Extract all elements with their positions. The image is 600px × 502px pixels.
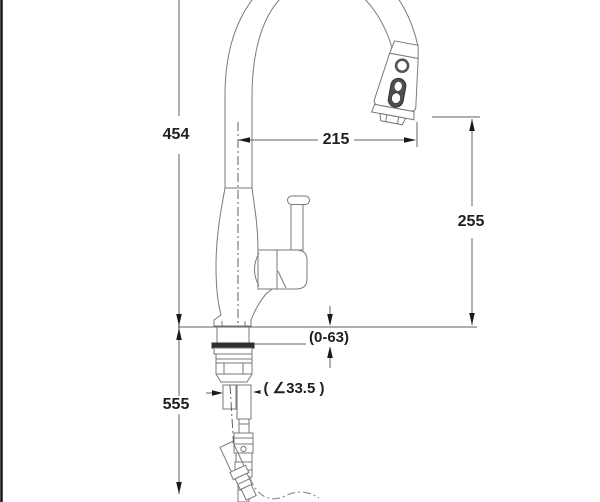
dimension-label-below-deck-length: 555 [160, 396, 193, 414]
faucet-handle [255, 196, 310, 289]
spray-mode-button [395, 59, 409, 73]
braided-hose-left [223, 385, 236, 409]
braided-hose-right [237, 385, 251, 419]
dimension-454-555-line [176, 0, 182, 494]
faucet-technical-drawing: 454 215 255 (0-63) ( ∠33.5 ) 555 [0, 0, 600, 502]
dimension-label-overall-height: 454 [160, 126, 193, 144]
dimension-label-shank-diameter: ( ∠33.5 ) [261, 381, 328, 398]
mounting-flange [214, 348, 252, 354]
phantom-hose-curve [250, 478, 319, 499]
mounting-nut [216, 354, 252, 382]
drawing-canvas [0, 0, 600, 502]
dimension-label-spout-reach: 215 [320, 131, 353, 149]
mounting-hardware [212, 327, 254, 382]
spray-head [370, 39, 427, 126]
handle-lever-cap [288, 196, 310, 205]
rubber-washer [212, 343, 254, 348]
handle-lever-stem [291, 204, 303, 250]
dimension-label-spout-height: 255 [455, 213, 488, 231]
dimension-label-deck-thickness: (0-63) [306, 330, 352, 347]
